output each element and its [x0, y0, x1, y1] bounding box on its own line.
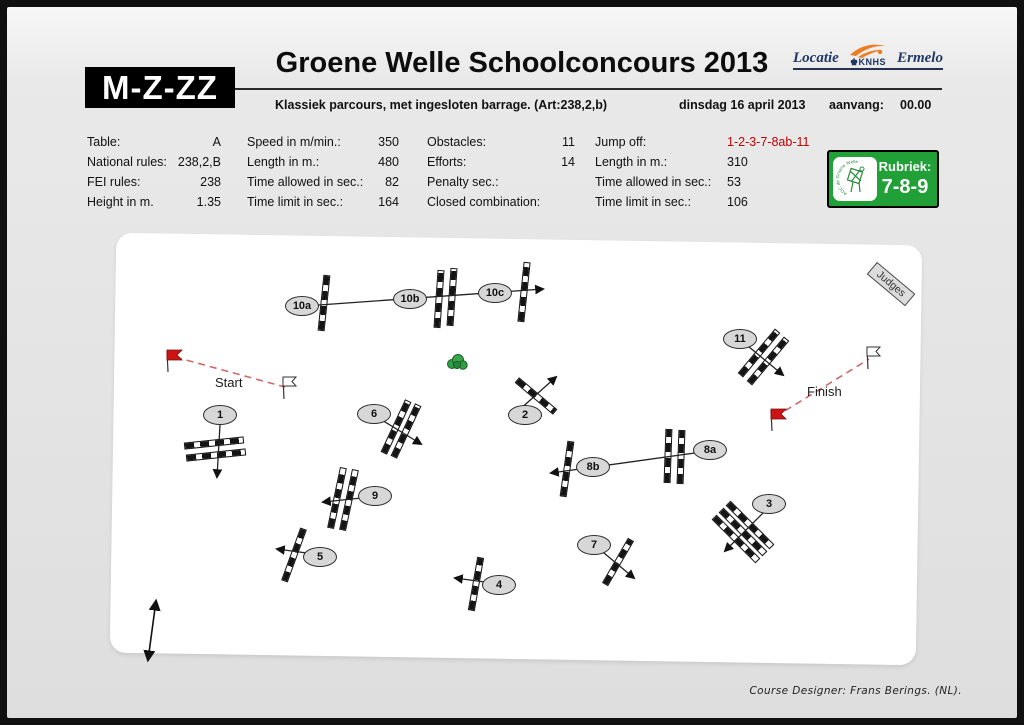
jump-4-marker: 4 [482, 575, 516, 595]
info-column-obstacles: Obstacles:11 Efforts:14 Penalty sec.: Cl… [427, 132, 575, 212]
page-title: Groene Welle Schoolconcours 2013 [242, 47, 802, 80]
jump-10c-marker: 10c [478, 283, 512, 303]
class-box: M-Z-ZZ [85, 67, 235, 108]
start-flag-red-icon [167, 350, 182, 372]
course-subtitle: Klassiek parcours, met ingesloten barrag… [275, 98, 607, 112]
info-row: Height in m.1.35 [87, 192, 221, 212]
info-row: Time allowed in sec.:82 [247, 172, 399, 192]
course-plan-sheet: M-Z-ZZ Groene Welle Schoolconcours 2013 … [0, 0, 1024, 725]
course-diagram: 1 2 3 4 5 6 7 8a 8b 9 10a 10b 10c 11 Jud… [115, 247, 915, 659]
dimension-arrow [148, 601, 156, 660]
jump-2-marker: 2 [508, 405, 542, 425]
info-row: FEI rules:238 [87, 172, 221, 192]
jump-10b-rail [446, 268, 457, 326]
info-column-speed: Speed in m/min.:350 Length in m.:480 Tim… [247, 132, 399, 212]
event-date: dinsdag 16 april 2013 [679, 98, 805, 112]
jump-10c-rail [517, 262, 530, 322]
start-time-value: 00.00 [900, 98, 931, 112]
info-row: Time limit in sec.:106 [595, 192, 810, 212]
rubriek-badge: AOC de Groene Welle Rubriek: 7-8-9 [827, 150, 939, 208]
logo-circle-text: AOC de Groene Welle [835, 159, 859, 196]
info-row: Efforts:14 [427, 152, 575, 172]
bush-icon [448, 355, 468, 370]
start-time-label: aanvang: [829, 98, 884, 112]
info-row: Penalty sec.: [427, 172, 575, 192]
jump-7-marker: 7 [577, 535, 611, 555]
jump-8a-marker: 8a [693, 440, 727, 460]
info-row: Length in m.:480 [247, 152, 399, 172]
knhs-wordmark: ♚KNHS [850, 58, 886, 67]
groene-welle-logo-icon: AOC de Groene Welle [835, 159, 875, 199]
info-row: Closed combination: [427, 192, 575, 212]
location-block: Locatie ♚KNHS Ermelo [793, 43, 943, 70]
jump-8-combination-line [551, 451, 709, 473]
jump-6-marker: 6 [357, 404, 391, 424]
judges-box: Judges [867, 262, 915, 306]
info-row: Speed in m/min.:350 [247, 132, 399, 152]
jump-10b-rail [433, 270, 444, 328]
jump-8a-rail [664, 429, 673, 483]
info-row: National rules:238,2,B [87, 152, 221, 172]
jump-5-marker: 5 [303, 547, 337, 567]
course-designer-credit: Course Designer: Frans Berings. (NL). [749, 685, 962, 697]
rubriek-label: Rubriek: [877, 159, 933, 174]
info-row: Length in m.:310 [595, 152, 810, 172]
finish-flag-red-icon [771, 409, 786, 431]
jump-11-marker: 11 [723, 329, 757, 349]
jump-8a-rail [677, 430, 686, 484]
svg-text:AOC de Groene Welle: AOC de Groene Welle [835, 159, 859, 196]
jump-1-rail [184, 436, 244, 449]
finish-flag-white-icon [867, 347, 880, 369]
start-flag-white-icon [283, 377, 296, 399]
class-box-label: M-Z-ZZ [102, 69, 218, 107]
info-column-rules: Table:A National rules:238,2,B FEI rules… [87, 132, 221, 212]
info-row: Time allowed in sec.:53 [595, 172, 810, 192]
location-prefix: Locatie [793, 50, 839, 67]
info-row: Time limit in sec.:164 [247, 192, 399, 212]
info-row: Obstacles:11 [427, 132, 575, 152]
jump-1-marker: 1 [203, 405, 237, 425]
info-row: Jump off:1-2-3-7-8ab-11 [595, 132, 810, 152]
location-city: Ermelo [897, 50, 943, 67]
header-rule [235, 88, 942, 90]
info-row: Table:A [87, 132, 221, 152]
start-label: Start [215, 375, 242, 390]
knhs-logo: ♚KNHS [849, 43, 887, 67]
jump-10a-rail [318, 275, 331, 331]
jump-8b-rail [560, 441, 575, 497]
finish-label: Finish [807, 384, 842, 399]
jump-10a-marker: 10a [285, 296, 319, 316]
jump-1-rail [186, 448, 246, 461]
info-column-jumpoff: Jump off:1-2-3-7-8ab-11 Length in m.:310… [595, 132, 810, 212]
jump-off-sequence: 1-2-3-7-8ab-11 [727, 135, 809, 149]
groene-welle-logo: AOC de Groene Welle [833, 157, 877, 201]
jump-10b-marker: 10b [393, 289, 427, 309]
jump-8b-marker: 8b [576, 457, 610, 477]
jump-9-marker: 9 [358, 486, 392, 506]
jump-3-marker: 3 [752, 494, 786, 514]
knhs-swoosh-icon [849, 43, 887, 58]
page-background: M-Z-ZZ Groene Welle Schoolconcours 2013 … [7, 7, 1017, 718]
rubriek-value: 7-8-9 [877, 176, 933, 199]
